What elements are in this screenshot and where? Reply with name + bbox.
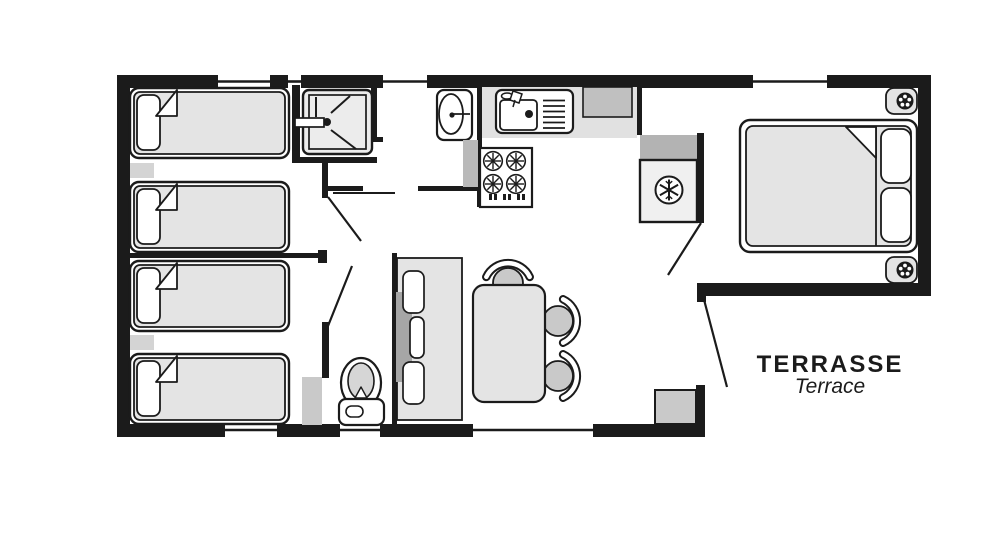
shower-room — [295, 90, 372, 154]
twin-bedroom-2 — [130, 261, 289, 424]
wall-bottom-1 — [117, 424, 225, 437]
bathroom — [437, 90, 478, 187]
stove-burner-icon — [507, 152, 526, 171]
dining-table — [473, 285, 545, 402]
bench-cushion — [410, 317, 424, 358]
twin-bedroom-1 — [130, 88, 289, 252]
chair-seat — [543, 361, 573, 391]
wc — [302, 358, 384, 425]
terrace: TERRASSE Terrace — [757, 351, 904, 398]
wall-top-5 — [827, 75, 931, 88]
bench-cushion — [403, 362, 424, 404]
chair-seat — [543, 306, 573, 336]
fridge-cabinet — [640, 135, 697, 160]
wall-shower-bottom — [292, 157, 377, 163]
wall-bottom-stub — [696, 385, 705, 437]
snowflake-icon — [656, 177, 683, 204]
terrace-label-fr: TERRASSE — [757, 351, 904, 378]
bench-cushion — [403, 271, 424, 313]
living-room — [396, 258, 577, 420]
door-bedroom-2 — [328, 266, 352, 326]
kitchen-cabinet — [583, 87, 632, 117]
fridge-nook — [640, 135, 697, 222]
pillow — [881, 129, 911, 183]
kitchen-sink-drain — [525, 110, 533, 118]
terrace-label-en: Terrace — [795, 375, 865, 398]
stove-burner-icon — [507, 175, 526, 194]
water-heater — [655, 390, 696, 424]
stove-burner-icon — [484, 175, 503, 194]
wall-top-2 — [270, 75, 288, 88]
toilet-icon — [339, 358, 384, 425]
nightstand-2 — [130, 335, 154, 350]
stove-burner-icon — [484, 152, 503, 171]
wall-top-3 — [301, 75, 383, 88]
master-bedroom — [740, 88, 917, 283]
wall-left — [117, 75, 130, 437]
wall-hall-vertical — [322, 160, 328, 198]
door-master-bedroom — [668, 223, 701, 275]
shower-bar — [295, 118, 324, 127]
wall-counter-end — [637, 85, 642, 135]
floor-plan-page: TERRASSE Terrace — [0, 0, 1000, 539]
reading-light-icon — [897, 262, 914, 279]
single-bed-2 — [130, 182, 289, 252]
single-bed-4 — [130, 354, 289, 424]
nightstand-1 — [130, 163, 154, 178]
wall-top-1 — [117, 75, 218, 88]
door-terrace — [702, 292, 727, 387]
wall-bedroom-divider — [130, 253, 320, 258]
reading-light-icon — [897, 93, 914, 110]
wall-terrace — [697, 283, 931, 296]
pillow — [881, 188, 911, 242]
wall-bedroom-divider-post — [318, 250, 327, 263]
door-shower — [328, 197, 361, 241]
wall-bottom-2 — [277, 424, 340, 437]
single-bed-1 — [130, 88, 289, 158]
single-bed-3 — [130, 261, 289, 331]
toilet-flush-button — [346, 406, 363, 417]
wall-wc — [322, 322, 329, 378]
stove — [480, 148, 532, 207]
wc-cabinet — [302, 377, 322, 425]
wall-bottom-3 — [380, 424, 473, 437]
wall-right — [918, 75, 931, 296]
wall-hall-a — [328, 186, 363, 191]
wall-top-4 — [427, 75, 753, 88]
floor-plan: TERRASSE Terrace — [0, 0, 1000, 539]
wall-bottom-4 — [593, 424, 705, 437]
bathroom-cabinet — [463, 140, 478, 187]
kitchen — [480, 87, 697, 222]
